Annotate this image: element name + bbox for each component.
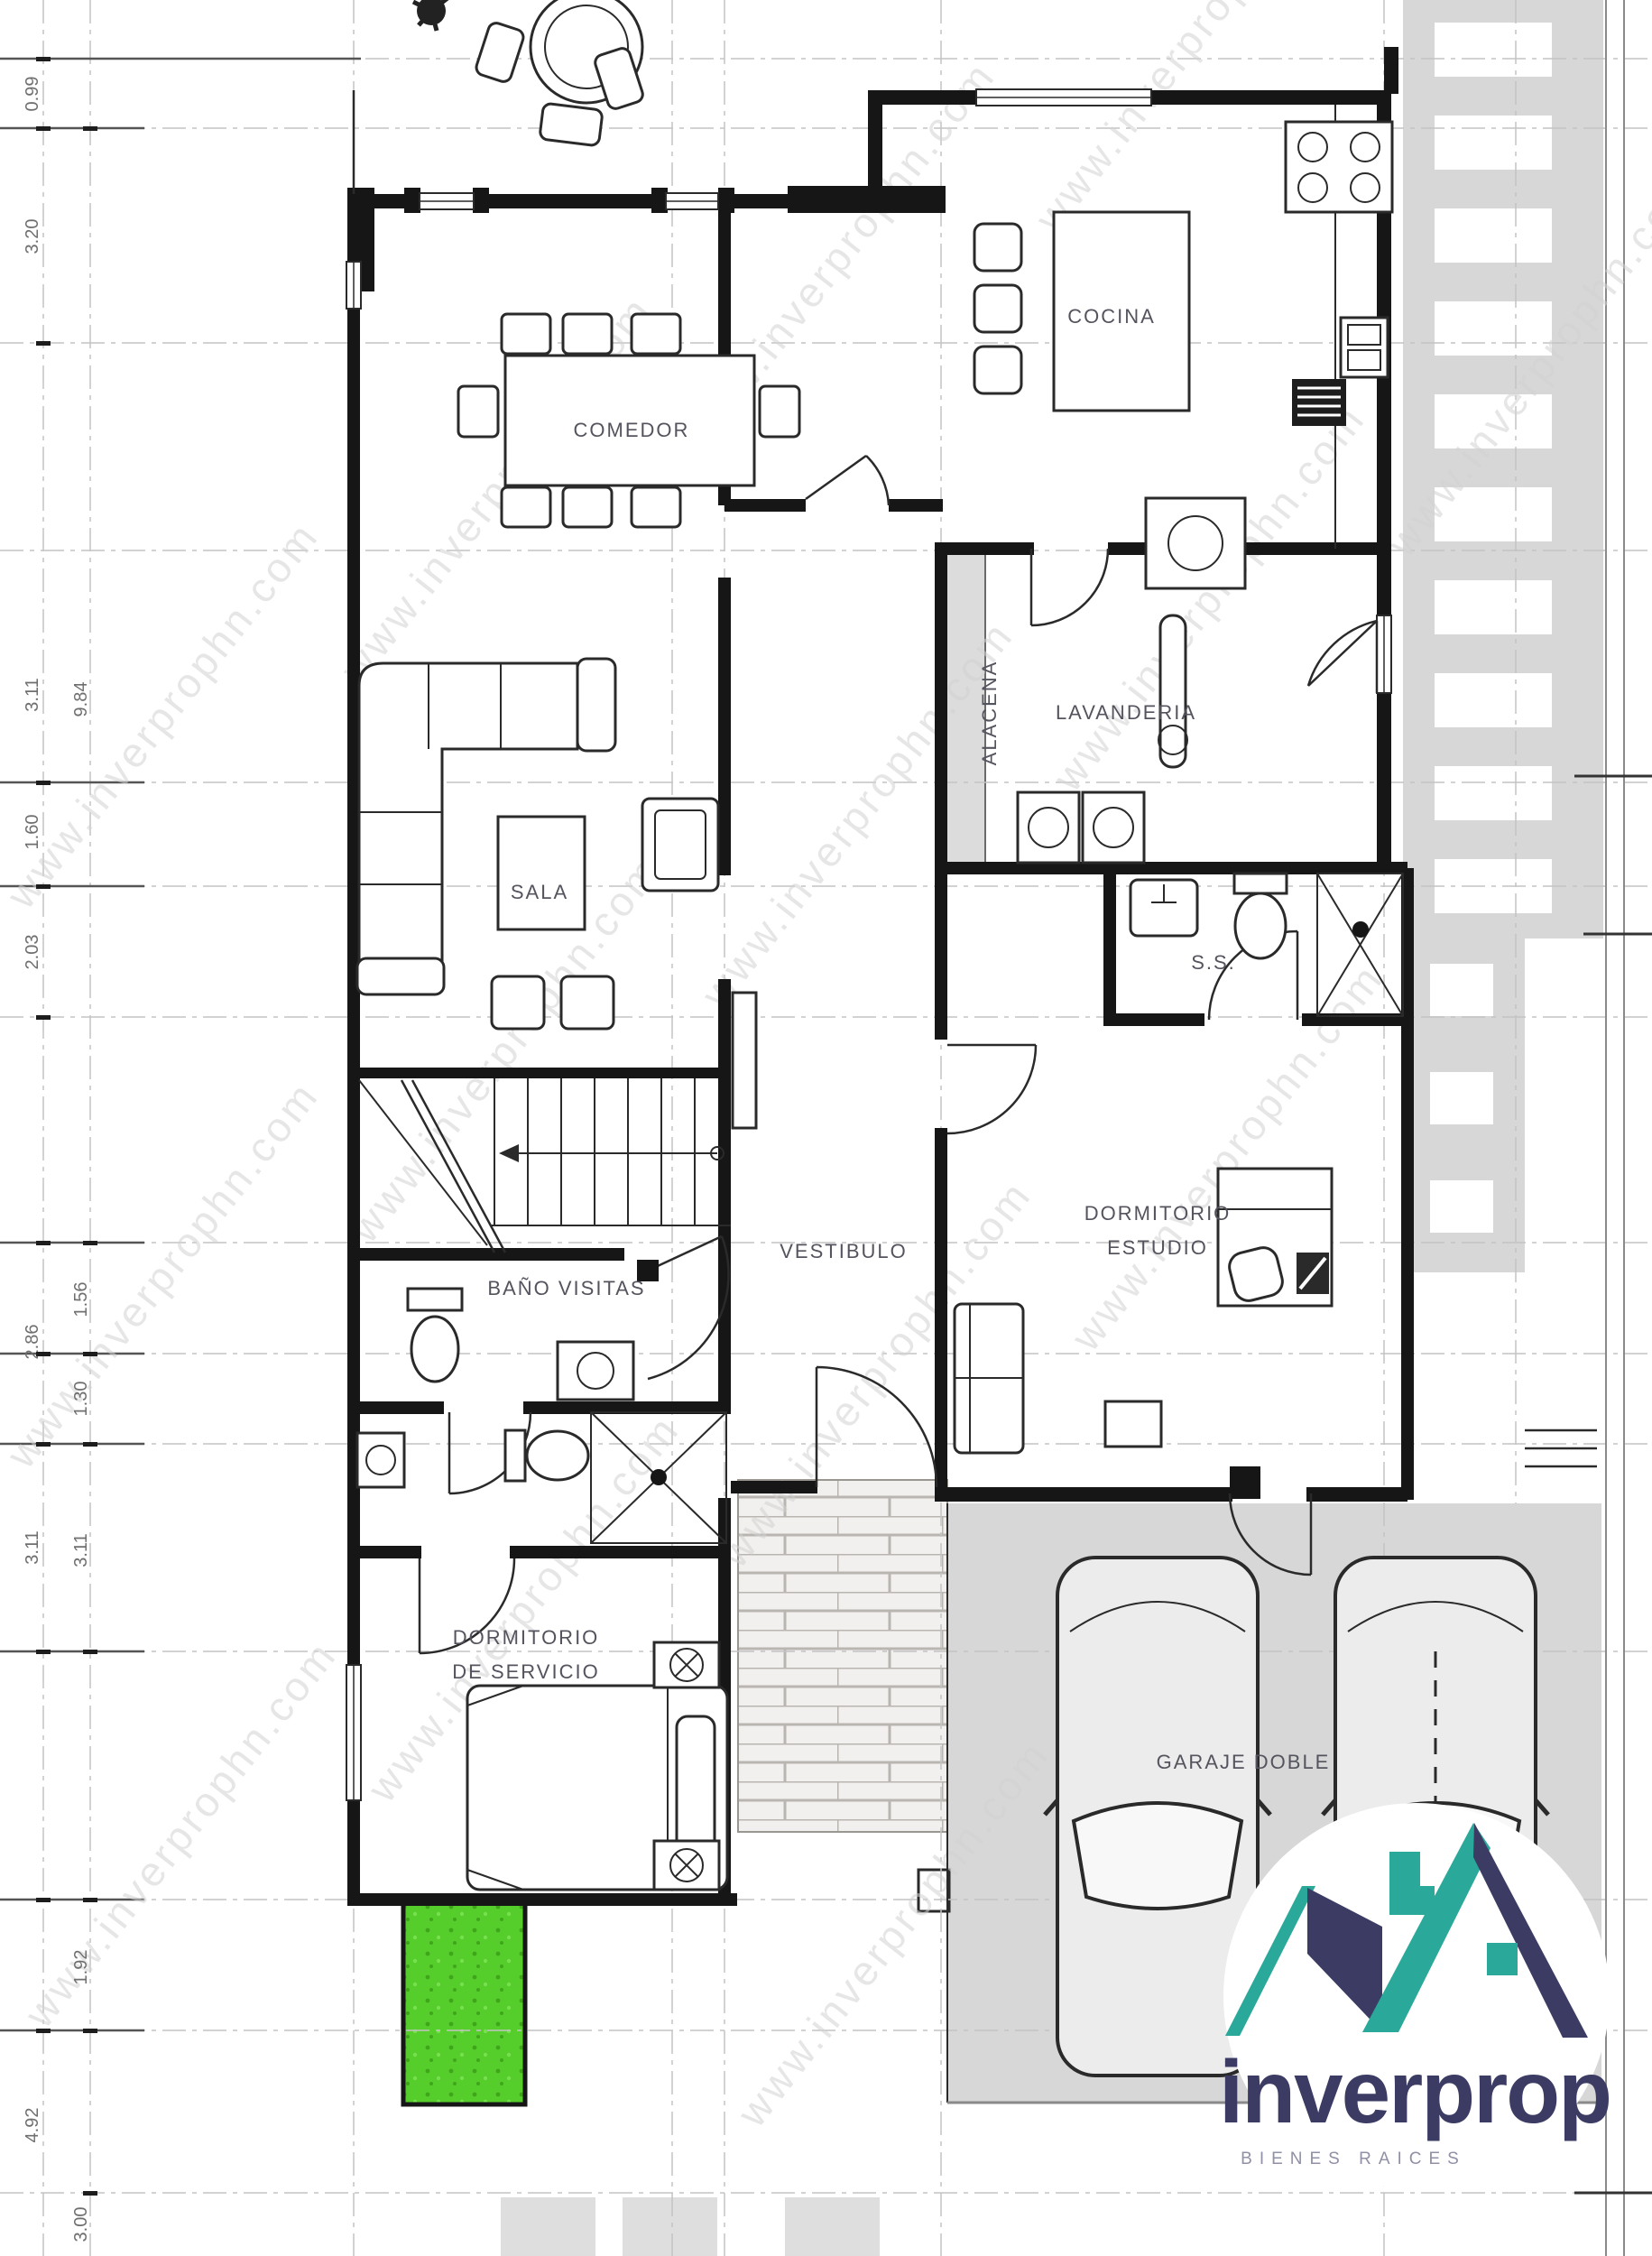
wall-pier — [788, 186, 946, 213]
windshield — [1074, 1803, 1241, 1909]
room-label-ss: S.S. — [1191, 951, 1236, 974]
guest-bath-fixtures — [408, 1289, 633, 1400]
dimension-label: 1.30 — [71, 1382, 91, 1417]
chair-icon — [540, 103, 603, 146]
floor-plan-sheet: www.inverprophn.com www.inverprophn.com … — [0, 0, 1652, 2256]
stool-icon — [974, 224, 1021, 271]
chair-icon — [632, 487, 680, 527]
room-label-bano-visitas: BAÑO VISITAS — [487, 1277, 645, 1299]
armchair-icon — [642, 799, 718, 891]
room-label-dormitorio-servicio: DORMITORIO — [453, 1626, 600, 1649]
chair-icon — [760, 386, 799, 437]
dimension-label: 3.11 — [71, 1533, 91, 1567]
terrace-furniture — [413, 0, 645, 146]
appliance-icon — [1292, 379, 1346, 426]
wall-laundry-bottom — [935, 862, 1407, 874]
estudio-door — [947, 1045, 1036, 1133]
room-label-dormitorio-servicio2: DE SERVICIO — [452, 1660, 599, 1683]
room-label-dormitorio-estudio2: ESTUDIO — [1107, 1236, 1208, 1259]
dimension-labels: 0.99 3.20 3.11 1.60 2.03 2.86 3.11 4.92 … — [23, 57, 97, 2242]
chair-icon — [458, 386, 498, 437]
toilet-icon — [527, 1431, 588, 1480]
logo-brand-text: inverprop — [1219, 2042, 1610, 2141]
dryer-icon — [1083, 792, 1144, 863]
chair-icon — [563, 314, 612, 354]
coffee-table-icon — [498, 817, 585, 929]
corridor-door — [806, 456, 889, 505]
room-label-lavanderia: LAVANDERIA — [1056, 701, 1196, 724]
washer-icon — [1018, 792, 1079, 863]
chair-icon — [502, 487, 550, 527]
bath-door — [648, 1236, 729, 1379]
room-label-dormitorio-estudio: DORMITORIO — [1084, 1202, 1232, 1225]
console-table-icon — [733, 993, 756, 1128]
kitchen-furniture — [974, 105, 1392, 549]
dimension-label: 3.11 — [23, 1530, 42, 1564]
grass-patch — [403, 1901, 525, 2104]
stool-icon — [974, 347, 1021, 393]
dimension-label: 3.00 — [71, 2207, 91, 2242]
laundry-door — [1031, 549, 1108, 625]
dimension-label: 3.11 — [23, 678, 42, 711]
toilet-tank-icon — [505, 1430, 525, 1481]
stool-icon — [974, 285, 1021, 332]
sink-icon — [558, 1342, 633, 1400]
room-label-cocina: COCINA — [1067, 305, 1156, 328]
dimension-label: 1.56 — [71, 1282, 91, 1318]
room-label-comedor: COMEDOR — [574, 419, 690, 441]
toilet-icon — [411, 1317, 458, 1382]
room-label-garaje: GARAJE DOBLE — [1157, 1751, 1331, 1773]
room-label-alacena: ALACENA — [978, 661, 1001, 766]
water-heater-icon — [1146, 498, 1245, 588]
room-label-vestibulo: VESTIBULO — [780, 1240, 907, 1262]
wall-bedroom-bottom — [347, 1893, 737, 1906]
toilet-tank-icon — [408, 1289, 462, 1310]
watermark-text: www.inverprophn.com — [14, 1632, 346, 2037]
side-steps — [1403, 1304, 1525, 1358]
wall-garage-top — [935, 1487, 1232, 1502]
dimension-label: 1.92 — [71, 1950, 91, 1985]
dimension-label: 2.03 — [23, 935, 42, 970]
pouf-icon — [561, 976, 614, 1029]
dimension-label: 9.84 — [71, 682, 91, 717]
dimension-label: 4.92 — [23, 2108, 42, 2143]
toilet-tank-icon — [1234, 874, 1287, 893]
dimension-ticks — [36, 57, 97, 2196]
chair-icon — [563, 487, 612, 527]
chair-icon — [475, 21, 526, 83]
pouf-icon — [492, 976, 544, 1029]
dimension-label: 1.60 — [23, 815, 42, 850]
sink-icon — [357, 1433, 404, 1487]
ironing-board-icon — [1160, 615, 1186, 767]
room-label-sala: SALA — [511, 881, 568, 903]
wall-left-exterior — [347, 194, 360, 1906]
pillow-icon — [677, 1716, 715, 1859]
watermark-text: www.inverprophn.com — [0, 1072, 328, 1477]
stove-icon — [1286, 122, 1392, 212]
watermark-text: www.inverprophn.com — [1043, 395, 1374, 800]
chair-icon — [502, 314, 550, 354]
laundry-exit-door — [1308, 621, 1377, 693]
garage-side-steps — [1525, 1430, 1597, 1466]
dimension-label: 0.99 — [23, 77, 42, 112]
toilet-icon — [1235, 893, 1286, 958]
chair-icon — [632, 314, 680, 354]
dimension-label: 3.20 — [23, 219, 42, 254]
logo-tagline-text: BIENES RAICES — [1241, 2150, 1466, 2168]
side-table-icon — [1105, 1401, 1161, 1447]
wall-pantry — [935, 549, 947, 868]
floor-plan-drawing: www.inverprophn.com www.inverprophn.com … — [0, 0, 1652, 2256]
watermark-text: www.inverprophn.com — [0, 513, 328, 918]
